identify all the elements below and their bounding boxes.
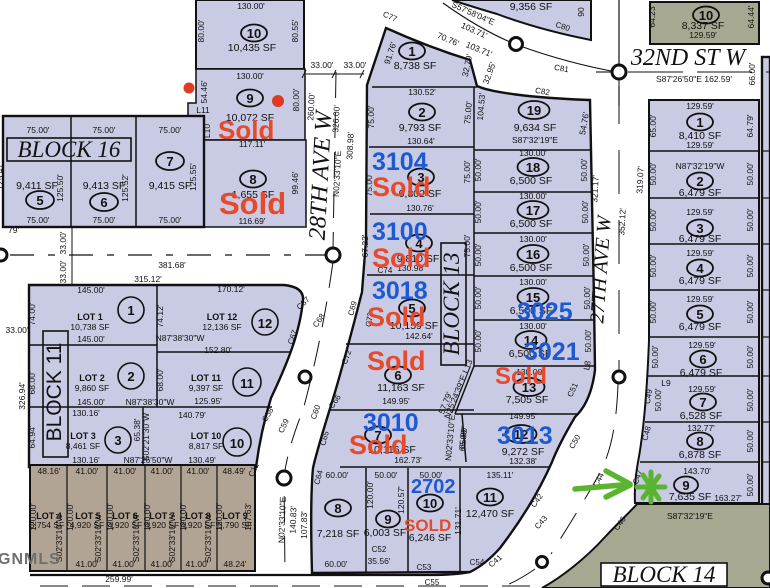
svg-text:9: 9 — [246, 91, 253, 106]
svg-text:75.00': 75.00' — [93, 125, 116, 135]
svg-text:S02'33'10"W: S02'33'10"W — [131, 514, 141, 562]
svg-text:6,479 SF: 6,479 SF — [679, 233, 722, 245]
svg-text:315.12': 315.12' — [134, 274, 162, 284]
svg-text:18: 18 — [526, 160, 540, 175]
svg-text:308.98': 308.98' — [344, 131, 355, 159]
svg-text:33.00': 33.00' — [58, 260, 68, 283]
svg-text:75.00': 75.00' — [462, 101, 474, 125]
svg-text:54.46': 54.46' — [199, 80, 209, 103]
svg-text:3021: 3021 — [524, 338, 580, 366]
svg-text:50.00': 50.00' — [375, 470, 398, 480]
svg-text:142.64': 142.64' — [405, 331, 433, 341]
svg-text:120.00': 120.00' — [214, 503, 224, 531]
svg-text:65.00': 65.00' — [648, 114, 658, 137]
svg-text:5: 5 — [696, 307, 703, 322]
svg-text:50.00': 50.00' — [745, 254, 755, 277]
svg-text:260.00': 260.00' — [305, 92, 316, 120]
svg-text:6,479 SF: 6,479 SF — [680, 367, 723, 379]
svg-text:130.00': 130.00' — [236, 71, 264, 81]
svg-text:145.00': 145.00' — [77, 397, 105, 407]
svg-text:Sold: Sold — [219, 186, 286, 221]
svg-text:Sold: Sold — [218, 115, 274, 145]
svg-text:8: 8 — [249, 172, 256, 187]
svg-text:BLOCK 14: BLOCK 14 — [613, 562, 716, 587]
svg-text:33.00': 33.00' — [58, 231, 68, 254]
svg-text:9,356 SF: 9,356 SF — [510, 1, 553, 13]
svg-text:S87'32'19"E: S87'32'19"E — [512, 135, 558, 145]
svg-text:50.00': 50.00' — [473, 243, 483, 266]
svg-text:7,218 SF: 7,218 SF — [317, 528, 360, 540]
svg-text:16: 16 — [526, 247, 540, 262]
svg-text:LOT 1: LOT 1 — [77, 312, 103, 322]
svg-text:10: 10 — [423, 496, 437, 511]
svg-text:Sold: Sold — [349, 430, 408, 460]
svg-text:68.00': 68.00' — [27, 371, 37, 394]
svg-text:LOT 3: LOT 3 — [70, 431, 96, 441]
svg-text:6,003 SF: 6,003 SF — [364, 527, 407, 539]
svg-text:50.00': 50.00' — [745, 345, 755, 368]
svg-text:50.00': 50.00' — [745, 388, 755, 411]
svg-text:9,634 SF: 9,634 SF — [514, 122, 557, 134]
svg-text:10,738 SF: 10,738 SF — [70, 322, 109, 332]
svg-text:4: 4 — [696, 261, 704, 276]
svg-text:2: 2 — [127, 369, 134, 384]
svg-text:7,635 SF: 7,635 SF — [669, 491, 712, 503]
svg-text:120.57': 120.57' — [396, 486, 406, 514]
svg-text:6: 6 — [100, 195, 107, 210]
svg-text:64.79': 64.79' — [745, 114, 755, 137]
svg-text:60.00': 60.00' — [325, 559, 348, 569]
svg-text:LOT 11: LOT 11 — [191, 373, 221, 383]
svg-text:8,738 SF: 8,738 SF — [394, 60, 437, 72]
svg-text:GNMLS: GNMLS — [0, 551, 61, 568]
svg-text:Sold: Sold — [367, 346, 426, 376]
svg-text:S87'26'50"E 162.59': S87'26'50"E 162.59' — [656, 74, 732, 84]
svg-text:6,500 SF: 6,500 SF — [510, 218, 553, 230]
svg-text:SOLD: SOLD — [404, 516, 451, 535]
svg-text:80.00': 80.00' — [196, 19, 206, 42]
svg-text:N02'33'10"E: N02'33'10"E — [276, 496, 288, 543]
svg-text:66.00': 66.00' — [747, 62, 757, 85]
svg-text:352.12': 352.12' — [616, 207, 627, 235]
svg-text:68.00': 68.00' — [155, 368, 165, 391]
svg-text:6,479 SF: 6,479 SF — [679, 275, 722, 287]
svg-text:6,479 SF: 6,479 SF — [679, 187, 722, 199]
svg-text:3100: 3100 — [372, 218, 428, 246]
svg-text:129.59': 129.59' — [686, 248, 714, 258]
svg-text:140.79': 140.79' — [178, 410, 206, 420]
svg-text:50.00': 50.00' — [473, 286, 483, 309]
svg-text:132.77': 132.77' — [687, 423, 715, 433]
svg-text:6,878 SF: 6,878 SF — [679, 449, 722, 461]
svg-text:48.49': 48.49' — [223, 466, 246, 476]
svg-text:11,163 SF: 11,163 SF — [377, 382, 425, 394]
svg-text:129.59': 129.59' — [686, 207, 714, 217]
svg-text:130.76': 130.76' — [406, 203, 434, 213]
svg-text:120.00': 120.00' — [105, 503, 115, 531]
svg-text:10: 10 — [230, 436, 244, 451]
svg-text:125.52': 125.52' — [120, 174, 130, 202]
svg-text:80.55': 80.55' — [290, 19, 300, 42]
svg-text:6,500 SF: 6,500 SF — [510, 262, 553, 274]
svg-text:50.00': 50.00' — [650, 345, 660, 368]
svg-text:48.16': 48.16' — [38, 466, 61, 476]
svg-text:N87'38'30"W: N87'38'30"W — [156, 333, 205, 343]
svg-text:50.00': 50.00' — [745, 208, 755, 231]
svg-text:9: 9 — [384, 512, 391, 527]
svg-text:132.38': 132.38' — [509, 456, 537, 466]
svg-text:125.55': 125.55' — [188, 163, 198, 191]
svg-text:125.50': 125.50' — [55, 174, 65, 202]
svg-text:7: 7 — [699, 395, 706, 410]
svg-text:75.00': 75.00' — [27, 215, 50, 225]
svg-text:7: 7 — [166, 154, 173, 169]
svg-text:8: 8 — [696, 434, 703, 449]
svg-text:1: 1 — [127, 303, 134, 318]
svg-text:79': 79' — [8, 225, 19, 235]
svg-text:107.63': 107.63' — [243, 503, 253, 531]
svg-text:33.00': 33.00' — [6, 325, 29, 335]
svg-text:321.17': 321.17' — [589, 174, 600, 202]
svg-text:S02'33'10"W: S02'33'10"W — [167, 514, 177, 562]
svg-text:130.16': 130.16' — [72, 455, 100, 465]
svg-text:75.00': 75.00' — [159, 215, 182, 225]
svg-text:326.00': 326.00' — [330, 104, 341, 132]
svg-text:L11: L11 — [196, 105, 210, 115]
svg-text:50.00': 50.00' — [745, 300, 755, 323]
svg-text:75.00': 75.00' — [462, 234, 472, 257]
svg-text:Sold: Sold — [372, 172, 431, 202]
svg-text:129.59': 129.59' — [688, 340, 716, 350]
svg-text:32ND ST W: 32ND ST W — [630, 45, 747, 71]
svg-text:48.24': 48.24' — [224, 559, 247, 569]
svg-text:8,817 SF: 8,817 SF — [189, 441, 224, 451]
svg-text:50.00': 50.00' — [648, 300, 658, 323]
svg-text:80.00': 80.00' — [291, 88, 301, 111]
svg-text:129.59': 129.59' — [686, 101, 714, 111]
svg-text:50.00': 50.00' — [583, 329, 593, 352]
svg-text:Sold: Sold — [367, 302, 426, 332]
svg-text:145.00': 145.00' — [77, 334, 105, 344]
svg-text:1: 1 — [696, 115, 703, 130]
svg-text:120.00': 120.00' — [142, 503, 152, 531]
svg-text:3: 3 — [114, 433, 121, 448]
svg-text:129.59': 129.59' — [689, 30, 717, 40]
svg-text:BLOCK 13: BLOCK 13 — [439, 253, 464, 356]
svg-text:BLOCK 16: BLOCK 16 — [18, 137, 121, 162]
svg-text:L9: L9 — [661, 378, 671, 388]
svg-text:135.11': 135.11' — [487, 470, 514, 480]
svg-text:LOT 10: LOT 10 — [191, 431, 222, 441]
svg-text:6: 6 — [699, 352, 706, 367]
svg-text:C54: C54 — [470, 558, 485, 567]
svg-text:1: 1 — [408, 44, 415, 59]
svg-text:41.00': 41.00' — [187, 466, 210, 476]
svg-text:7,505 SF: 7,505 SF — [506, 394, 549, 406]
svg-text:C55: C55 — [425, 578, 440, 587]
svg-text:9,411 SF: 9,411 SF — [16, 180, 58, 192]
svg-text:152.80': 152.80' — [204, 345, 232, 355]
svg-text:N87'32'19"W: N87'32'19"W — [676, 161, 725, 171]
svg-text:50.00': 50.00' — [648, 162, 658, 185]
svg-text:L8: L8 — [581, 360, 593, 371]
svg-text:2: 2 — [418, 105, 425, 120]
svg-text:129.59': 129.59' — [688, 384, 716, 394]
svg-text:130.16': 130.16' — [72, 408, 100, 418]
svg-text:50.00': 50.00' — [473, 200, 483, 223]
svg-text:12: 12 — [258, 316, 272, 331]
svg-text:BLOCK 11: BLOCK 11 — [43, 343, 66, 442]
svg-text:319.07': 319.07' — [634, 165, 645, 193]
svg-text:64.94': 64.94' — [27, 425, 37, 448]
svg-text:50.00': 50.00' — [580, 200, 590, 223]
svg-text:50.00': 50.00' — [473, 329, 483, 352]
svg-text:75.00': 75.00' — [93, 215, 116, 225]
svg-text:9,415 SF: 9,415 SF — [149, 180, 192, 192]
svg-text:326.94': 326.94' — [17, 382, 27, 410]
svg-text:143.70': 143.70' — [683, 466, 711, 476]
svg-text:75.00': 75.00' — [366, 105, 376, 128]
svg-text:3025: 3025 — [517, 298, 573, 326]
svg-text:129.59': 129.59' — [686, 294, 714, 304]
svg-text:75.00': 75.00' — [159, 125, 182, 135]
svg-text:3013: 3013 — [497, 422, 553, 450]
svg-text:9,413 SF: 9,413 SF — [83, 180, 126, 192]
svg-text:N87'38'30"W: N87'38'30"W — [126, 397, 175, 407]
svg-text:130.00': 130.00' — [519, 148, 547, 158]
svg-text:130.00': 130.00' — [237, 1, 265, 11]
svg-text:6,479 SF: 6,479 SF — [679, 321, 722, 333]
svg-text:50.00': 50.00' — [745, 473, 755, 496]
svg-text:17: 17 — [526, 203, 540, 218]
svg-text:9,793 SF: 9,793 SF — [399, 122, 442, 134]
svg-text:130.00': 130.00' — [519, 191, 547, 201]
svg-text:50.00': 50.00' — [745, 162, 755, 185]
svg-text:99.46': 99.46' — [290, 171, 300, 194]
svg-text:75.00': 75.00' — [462, 160, 472, 183]
svg-text:5: 5 — [36, 193, 43, 208]
svg-text:11: 11 — [240, 376, 254, 391]
svg-text:41.00': 41.00' — [76, 466, 99, 476]
svg-text:35.56': 35.56' — [368, 556, 391, 566]
svg-text:C52: C52 — [372, 545, 387, 554]
svg-text:125.95': 125.95' — [194, 396, 222, 406]
svg-text:129.59': 129.59' — [686, 140, 714, 150]
svg-text:8,461 SF: 8,461 SF — [66, 441, 101, 451]
svg-text:Sold: Sold — [372, 243, 431, 273]
svg-text:33.00': 33.00' — [311, 60, 334, 70]
svg-text:50.00': 50.00' — [473, 158, 483, 181]
svg-text:149.95': 149.95' — [509, 411, 537, 421]
svg-text:65.38': 65.38' — [132, 418, 142, 441]
svg-text:C53: C53 — [417, 563, 432, 572]
svg-text:259.99': 259.99' — [105, 574, 133, 584]
svg-text:140.83': 140.83' — [288, 506, 299, 534]
svg-text:41.00': 41.00' — [151, 466, 174, 476]
svg-text:67.22': 67.22' — [360, 234, 370, 257]
svg-text:131.71': 131.71' — [453, 507, 463, 535]
svg-text:50.00': 50.00' — [648, 254, 658, 277]
svg-text:120.00': 120.00' — [178, 503, 188, 531]
svg-text:90: 90 — [576, 7, 586, 17]
svg-text:3018: 3018 — [372, 277, 428, 305]
svg-text:10,435 SF: 10,435 SF — [228, 42, 276, 54]
svg-text:64.44': 64.44' — [746, 5, 756, 28]
svg-text:74.00': 74.00' — [27, 302, 37, 325]
svg-text:130.52': 130.52' — [408, 87, 436, 97]
svg-text:130.64': 130.64' — [407, 136, 435, 146]
svg-text:125.47': 125.47' — [0, 162, 5, 190]
svg-text:8: 8 — [334, 501, 341, 516]
svg-text:6,528 SF: 6,528 SF — [680, 410, 723, 422]
svg-text:50.00': 50.00' — [648, 208, 658, 231]
svg-text:130.49': 130.49' — [188, 455, 216, 465]
svg-text:120.00': 120.00' — [28, 503, 38, 531]
svg-text:145.00': 145.00' — [77, 285, 105, 295]
svg-text:11: 11 — [483, 490, 497, 505]
svg-text:120.00': 120.00' — [365, 481, 375, 509]
svg-text:19: 19 — [527, 103, 541, 118]
svg-text:2702: 2702 — [411, 476, 456, 498]
svg-text:12,136 SF: 12,136 SF — [202, 322, 241, 332]
svg-text:S02'33'10"W: S02'33'10"W — [203, 514, 213, 562]
svg-text:33.00': 33.00' — [344, 60, 367, 70]
svg-text:74.12': 74.12' — [155, 304, 165, 327]
svg-text:50.00': 50.00' — [745, 429, 755, 452]
svg-text:6,500 SF: 6,500 SF — [510, 175, 553, 187]
svg-text:75.00': 75.00' — [27, 125, 50, 135]
svg-text:41.00': 41.00' — [114, 466, 137, 476]
svg-text:12,470 SF: 12,470 SF — [466, 508, 514, 520]
svg-text:LOT 2: LOT 2 — [79, 373, 105, 383]
svg-text:S02'21'30"W: S02'21'30"W — [141, 413, 151, 461]
svg-text:10: 10 — [247, 26, 261, 41]
svg-text:50.00': 50.00' — [579, 158, 589, 181]
svg-text:107.83': 107.83' — [299, 511, 309, 539]
svg-text:130.00': 130.00' — [519, 277, 547, 287]
svg-text:60.00': 60.00' — [326, 470, 349, 480]
svg-text:9,860 SF: 9,860 SF — [75, 383, 110, 393]
svg-text:64.23: 64.23 — [647, 6, 657, 28]
svg-text:65.00': 65.00' — [457, 428, 469, 452]
svg-text:50.00': 50.00' — [653, 388, 663, 411]
svg-text:149.95': 149.95' — [382, 396, 410, 406]
svg-text:S87'32'19"E: S87'32'19"E — [667, 511, 713, 521]
svg-text:Sold: Sold — [495, 363, 547, 390]
svg-text:120.00': 120.00' — [65, 503, 75, 531]
svg-text:LOT 12: LOT 12 — [207, 312, 238, 322]
svg-text:170.12': 170.12' — [217, 284, 245, 294]
svg-text:130.00': 130.00' — [519, 234, 547, 244]
svg-text:163.27': 163.27' — [714, 493, 742, 503]
svg-text:9,397 SF: 9,397 SF — [189, 383, 224, 393]
svg-text:381.68': 381.68' — [158, 260, 186, 270]
svg-text:S02'33'10"W: S02'33'10"W — [93, 514, 103, 562]
